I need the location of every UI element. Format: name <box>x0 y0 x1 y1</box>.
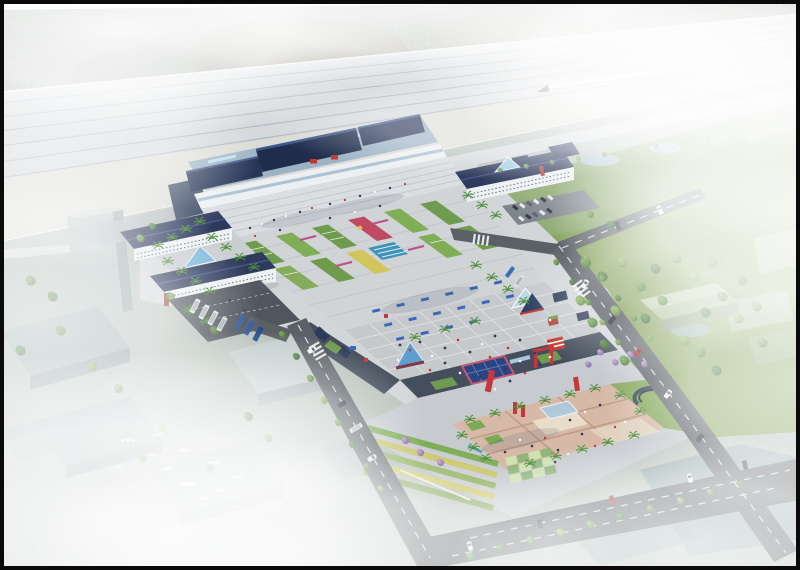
rendering-stage <box>0 0 800 570</box>
station-sign-red <box>310 159 317 164</box>
aerial-rendering <box>0 0 800 570</box>
